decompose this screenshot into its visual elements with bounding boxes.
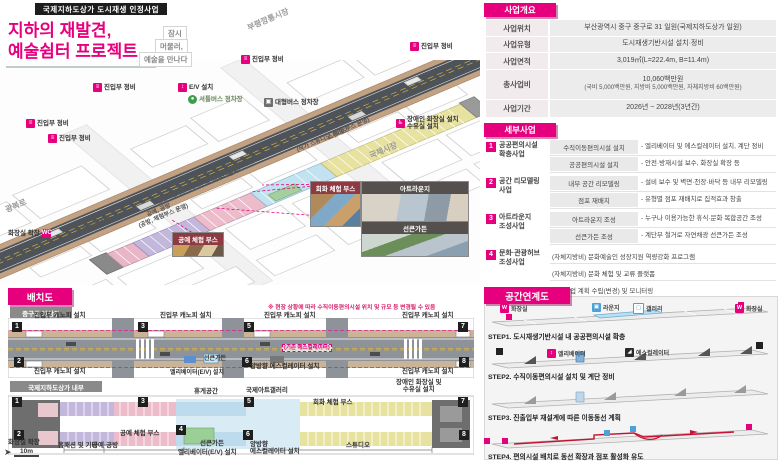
item-desc: - 누구나 이용가능한 휴식·문화 복합공간 조성 [641, 212, 776, 226]
row-label: 사업위치 [486, 20, 548, 36]
label: 화장실 [511, 304, 528, 313]
group-name: 확충사업 [499, 151, 538, 160]
interior-paint-booth-label: 회화 체험 부스 [313, 399, 353, 406]
item-desc: - 엘리베이터 및 에스컬레이터 설치, 계단 정비 [641, 140, 776, 154]
item-desc: - 안전·방재시설 보수, 화장실 확장 등 [641, 157, 776, 171]
surface-escalator-label: 양방향 에스컬레이터 설치 [250, 363, 319, 370]
elevator-icon: ↕ [547, 349, 556, 358]
interior-gallery-label: 국제아트갤러리 [246, 387, 288, 394]
canopy-label-3: 진입부 캐노피 설치 [264, 312, 315, 319]
step2-escalator: ◢ 에스컬레이터 [625, 348, 669, 357]
layout-note: ※ 현장 상황에 따라 수직이동편의시설 위치 및 규모 등 변경될 수 있음 [268, 302, 435, 311]
overview-table: 사업위치 부산광역시 중구 중구로 31 일원(국제지하도상가 일원) 사업유형… [486, 20, 776, 117]
table-row: 총사업비 10,060백만원 (국비 5,000백만원, 지방비 5,000백만… [486, 70, 776, 99]
scale-bar: 10m [14, 448, 39, 457]
surface-sunken-label: 선큰가든 [204, 356, 226, 363]
item-desc: - 계단부 철거로 자연채광 선큰가든 조성 [641, 229, 776, 243]
marker-8: 8 [459, 357, 469, 367]
marker-1: 1 [12, 322, 22, 332]
toilet-icon: W [735, 304, 744, 313]
escalator-icon: ◢ [625, 348, 634, 357]
interior-studio-label: 스튜디오 [346, 442, 370, 449]
interior-accessible-label: 장애인 화장실 및 수유실 설치 [396, 379, 441, 394]
step3-sketch [484, 380, 776, 410]
entrance-label: 진입부 정비 [252, 56, 284, 63]
step1-toilet-left: W 화장실 [500, 304, 528, 313]
row-label: 사업유형 [486, 37, 548, 52]
callout-title: 공예 체험 부스 [173, 233, 223, 245]
paint-booth-photo [311, 194, 360, 226]
row-value: 10,060백만원 [643, 76, 684, 85]
accessible-icon: ♿ [396, 119, 405, 128]
overview-header: 사업개요 [484, 3, 556, 17]
callout-craft-booth: 공예 체험 부스 [172, 232, 224, 257]
entrance-icon: ≡ [241, 55, 250, 64]
item-line: (자체지방비) 문화예술인 성장지원 역량강화 프로그램 [550, 248, 776, 264]
row-note: (국비 5,000백만원, 지방비 5,000백만원, 자체지방비 60백만원) [584, 85, 741, 93]
title-rule [6, 66, 156, 68]
item-desc: - 유형별 점포 재배치로 집적효과 창출 [641, 193, 776, 207]
marker-6b: 6 [243, 430, 253, 440]
item-title: 수직이동편의시설 설치 [550, 140, 638, 154]
marker-3b: 3 [138, 397, 148, 407]
canopy-label-4: 진입부 캐노피 설치 [402, 312, 453, 319]
toilet-icon: WC [42, 229, 51, 238]
craft-booth-photo [173, 245, 223, 256]
toilet-icon: W [500, 304, 509, 313]
row-label: 사업기간 [486, 100, 548, 117]
shuttle-stop-icon: ● [188, 95, 197, 104]
elevator-icon: ↕ [178, 83, 187, 92]
interior-rest-label: 휴게공간 [194, 388, 218, 395]
label: 갤러리 [646, 304, 663, 313]
detail-header: 세부사업 [484, 123, 556, 137]
bus-icon: ▣ [264, 98, 273, 107]
group-name: 공공편의시설 [499, 142, 538, 151]
marker-5b: 5 [244, 397, 254, 407]
interior-craft-booth-label: 공예 체험 부스 [120, 430, 160, 437]
row-value: 부산광역시 중구 중구로 31 일원(국제지하도상가 일원) [584, 24, 741, 33]
step2-elevator: ↕ 엘리베이터 [547, 349, 586, 358]
row-label: 총사업비 [486, 70, 548, 99]
canopy-label-1: 진입부 캐노피 설치 [34, 312, 85, 319]
row-value: 3,019㎡(L=222.4m, B=11.4m) [617, 57, 709, 66]
entrance-icon: ≡ [410, 42, 419, 51]
step4-caption: STEP4. 편의시설 배치로 동선 확장과 점포 활성화 유도 [488, 451, 643, 461]
map-label-entrance-1: ≡ 진입부 정비 [93, 83, 136, 92]
lounge-icon: ▣ [592, 303, 601, 312]
detail-table: 1 공공편의시설 확충사업 수직이동편의시설 설치 - 엘리베이터 및 에스컬레… [486, 140, 776, 301]
surface-elevator-label: 엘리베이터(E/V) 설치 [170, 370, 224, 377]
item-title: 내부 공간 리모델링 [550, 176, 638, 190]
slogan-step-3: 예술을 만나다 [139, 52, 192, 67]
title-line2: 예술쉼터 프로젝트 [8, 41, 138, 62]
marker-8b: 8 [459, 430, 469, 440]
callout-sunken: 선큰가든 [361, 221, 469, 257]
marker-1b: 1 [12, 397, 22, 407]
interior-toilet-label: 화장실 확장 [8, 439, 40, 446]
row-value: 도시재생기반시설 설치·정비 [622, 40, 704, 49]
marker-7: 7 [458, 322, 468, 332]
entrance-label: 진입부 정비 [37, 120, 69, 127]
step1-sketch [484, 300, 776, 330]
canopy-label-2: 진입부 캐노피 설치 [160, 312, 211, 319]
group-number: 4 [486, 250, 496, 260]
marker-7b: 7 [458, 397, 468, 407]
group-number: 3 [486, 214, 496, 224]
group-name: 아트라운지 [499, 214, 531, 223]
row-value: 2026년 ~ 2028년(3년간) [626, 104, 699, 113]
table-row: 사업유형 도시재생기반시설 설치·정비 [486, 37, 776, 52]
north-arrow-icon: ➤ [4, 447, 12, 457]
item-title: 공공편의시설 설치 [550, 157, 638, 171]
elevator-label: E/V 설치 [189, 84, 213, 91]
layout-header: 배치도 [8, 288, 72, 305]
row-label: 사업면적 [486, 53, 548, 69]
sunken-photo [362, 234, 468, 256]
table-row: 사업면적 3,019㎡(L=222.4m, B=11.4m) [486, 53, 776, 69]
title-line1: 지하의 재발견, [8, 20, 138, 41]
street-bupyeong: 부평깡통시장 [246, 7, 290, 33]
entrance-icon: ≡ [48, 134, 57, 143]
marker-4b: 4 [176, 425, 186, 435]
entrance-icon: ≡ [93, 83, 102, 92]
interior-craft-label: 공예·공방 [92, 442, 118, 449]
marker-3: 3 [138, 322, 148, 332]
step4-sketch [484, 418, 776, 450]
item-title: 점포 재배치 [550, 193, 638, 207]
entrance-label: 진입부 정비 [421, 43, 453, 50]
step1-toilet-right: W 화장실 [735, 304, 763, 313]
marker-5: 5 [244, 322, 254, 332]
callout-paint-booth: 회화 체험 부스 [310, 181, 361, 227]
accessible-label: 장애인 화장실 설치 수유실 설치 [407, 116, 458, 131]
callout-title: 아트라운지 [362, 182, 468, 194]
callout-artlounge: 아트라운지 [361, 181, 469, 225]
shuttle-label: 셔틀버스 정차장 [199, 96, 243, 103]
detail-group-2: 2 공간 리모델링 사업 내부 공간 리모델링 - 설비 보수 및 벽면·천장·… [486, 176, 776, 209]
marker-2: 2 [14, 357, 24, 367]
canopy-label-5: 진입부 캐노피 설치 [34, 368, 85, 375]
item-title: 아트라운지 조성 [550, 212, 638, 226]
canopy-label-6: 진입부 캐노피 설치 [402, 368, 453, 375]
interior-elevator-label: 엘리베이터(E/V) 설치 [178, 449, 236, 456]
table-row: 사업위치 부산광역시 중구 중구로 31 일원(국제지하도상가 일원) [486, 20, 776, 36]
map-label-toilet-expand: 화장실 확장 WC [8, 229, 51, 238]
callout-title: 회화 체험 부스 [311, 182, 360, 194]
label: 에스컬레이터 [636, 348, 669, 357]
escalator-line2: 에스컬레이터 설치 [250, 448, 300, 455]
existing-escalator-label: (기존 에스컬레이터) [282, 344, 332, 352]
map-label-entrance-5: ≡ 진입부 정비 [48, 134, 91, 143]
item-desc: - 설비 보수 및 벽면·천장·바닥 등 내부 리모델링 [641, 176, 776, 190]
item-title: 선큰가든 조성 [550, 229, 638, 243]
entrance-icon: ≡ [26, 119, 35, 128]
step1-lounge: ▣ 라운지 [592, 303, 620, 312]
interior-subtitle: 국제지하도상가 내부 [10, 381, 102, 392]
entrance-label: 진입부 정비 [59, 135, 91, 142]
label: 엘리베이터 [558, 349, 586, 358]
group-number: 2 [486, 178, 496, 188]
accessible-line2: 수유실 설치 [396, 386, 441, 393]
detail-group-3: 3 아트라운지 조성사업 아트라운지 조성 - 누구나 이용가능한 휴식·문화 … [486, 212, 776, 245]
program-badge: 국제지하도상가 도시재생 인정사업 [35, 3, 167, 15]
group-name: 조성사업 [499, 223, 531, 232]
label: 화장실 [746, 304, 763, 313]
toilet-expand-label: 화장실 확장 [8, 230, 40, 237]
table-row: 사업기간 2026년 ~ 2028년(3년간) [486, 100, 776, 117]
map-label-entrance-2: ≡ 진입부 정비 [410, 42, 453, 51]
bus-label: 대형버스 정차장 [275, 99, 319, 106]
detail-group-1: 1 공공편의시설 확충사업 수직이동편의시설 설치 - 엘리베이터 및 에스컬레… [486, 140, 776, 173]
group-name: 사업 [499, 187, 540, 196]
entrance-label: 진입부 정비 [104, 84, 136, 91]
artlounge-photo [362, 194, 468, 224]
step1-gallery: ▢ 갤러리 [633, 303, 663, 314]
map-label-entrance-4: ≡ 진입부 정비 [26, 119, 69, 128]
poster-page: 국제지하도상가 도시재생 인정사업 지하의 재발견, 예술쉼터 프로젝트 잠시 … [0, 0, 778, 461]
map-label-accessible-toilet: ♿ 장애인 화장실 설치 수유실 설치 [396, 116, 458, 131]
label: 라운지 [603, 303, 620, 312]
group-name: 공간 리모델링 [499, 178, 540, 187]
map-label-entrance-3: ≡ 진입부 정비 [241, 55, 284, 64]
group-number: 1 [486, 142, 496, 152]
map-label-bus: ▣ 대형버스 정차장 [264, 98, 319, 107]
group-name: 조성사업 [499, 259, 540, 268]
group-name: 문화·관광허브 [499, 250, 540, 259]
page-title: 지하의 재발견, 예술쉼터 프로젝트 [8, 20, 138, 62]
callout-title: 선큰가든 [362, 222, 468, 234]
accessible-line2: 수유실 설치 [407, 123, 458, 130]
gallery-icon: ▢ [633, 303, 644, 314]
scale-label: 10m [20, 448, 33, 455]
item-line: (자체지방비) 문화 체험 및 교류 플랫폼 [550, 265, 776, 281]
map-label-elevator: ↕ E/V 설치 [178, 83, 213, 92]
interior-sunken-label: 선큰가든 [200, 440, 224, 447]
interior-escalator-label: 양방향 에스컬레이터 설치 [250, 441, 300, 456]
map-label-shuttle: ● 셔틀버스 정차장 [188, 95, 243, 104]
